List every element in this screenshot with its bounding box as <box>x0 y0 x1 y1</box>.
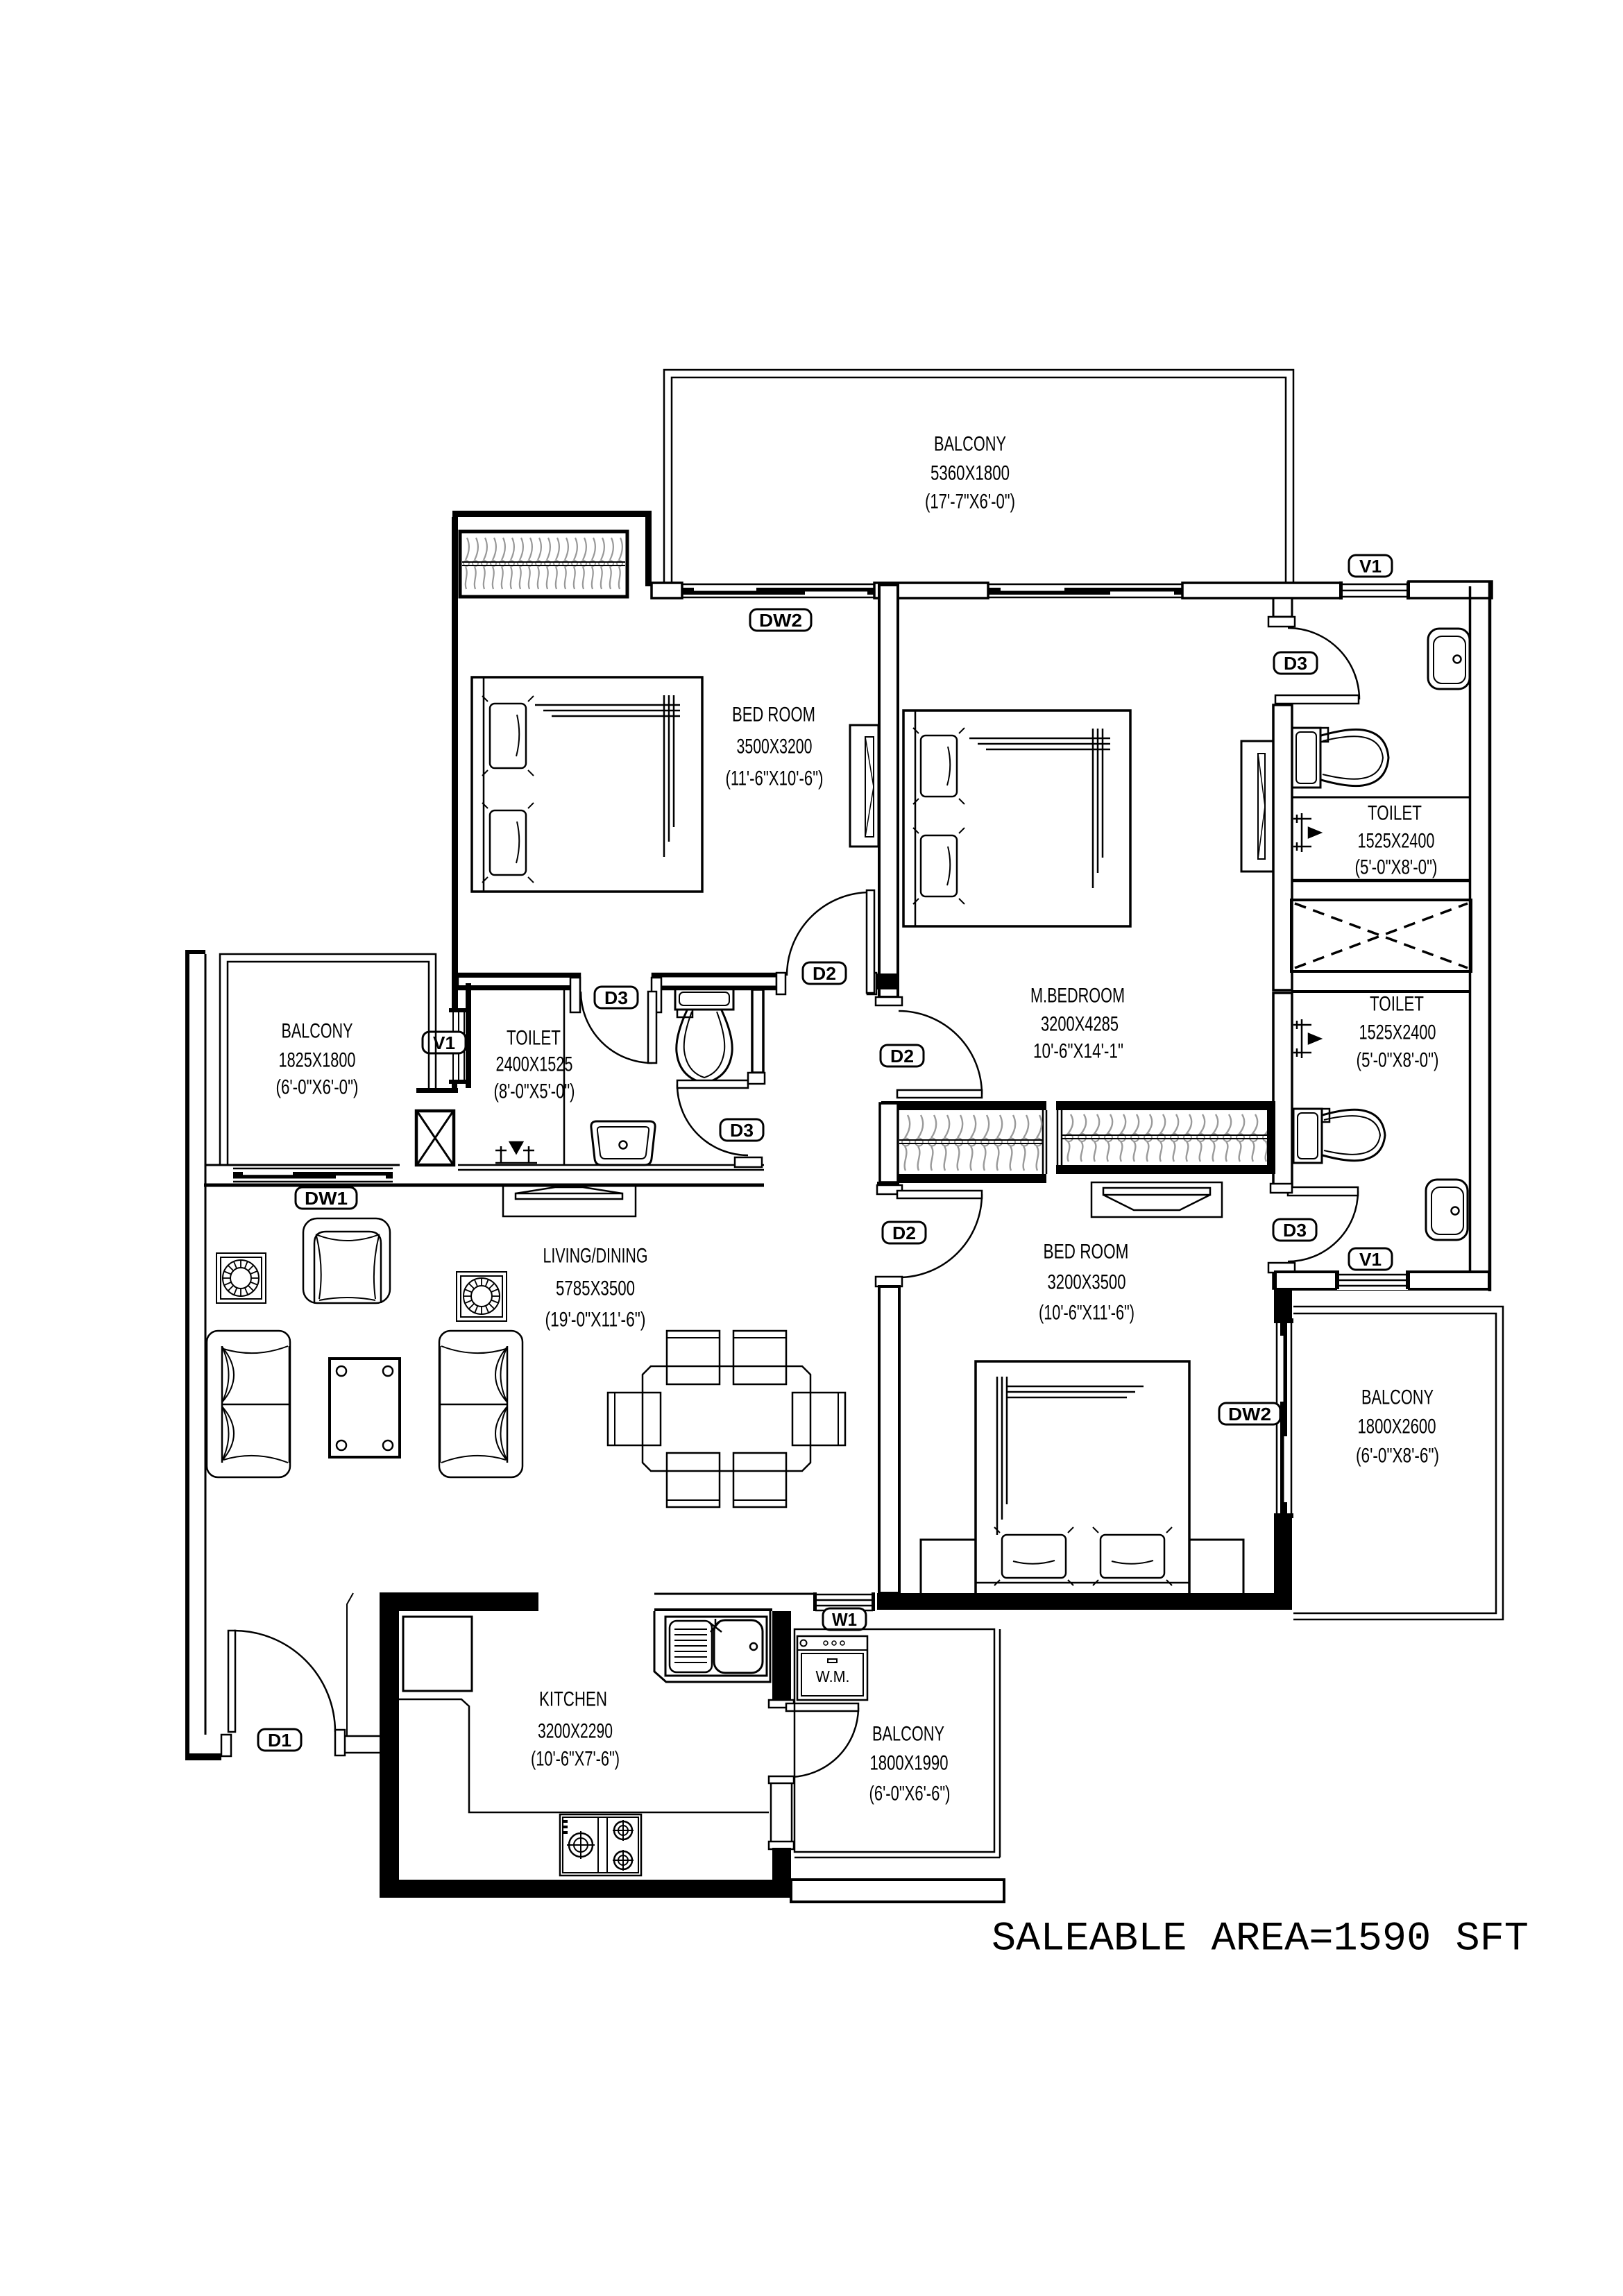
svg-text:D3: D3 <box>604 987 628 1008</box>
svg-text:LIVING/DINING: LIVING/DINING <box>543 1245 648 1268</box>
svg-text:2400X1525: 2400X1525 <box>496 1053 573 1076</box>
svg-text:D2: D2 <box>892 1223 916 1243</box>
svg-text:5360X1800: 5360X1800 <box>931 462 1010 485</box>
svg-text:BALCONY: BALCONY <box>282 1020 353 1043</box>
svg-text:(17'-7"X6'-0"): (17'-7"X6'-0") <box>925 491 1015 513</box>
svg-text:1825X1800: 1825X1800 <box>279 1049 356 1072</box>
svg-text:(10'-6"X11'-6"): (10'-6"X11'-6") <box>1039 1302 1135 1325</box>
svg-text:V1: V1 <box>1359 1249 1382 1270</box>
svg-text:(10'-6"X7'-6"): (10'-6"X7'-6") <box>531 1748 620 1771</box>
svg-text:(6'-0"X6'-6"): (6'-0"X6'-6") <box>869 1783 951 1805</box>
svg-text:DW1: DW1 <box>305 1188 348 1209</box>
svg-text:3200X4285: 3200X4285 <box>1041 1013 1119 1036</box>
svg-text:DW2: DW2 <box>1228 1404 1271 1425</box>
svg-text:D1: D1 <box>268 1730 291 1751</box>
svg-text:TOILET: TOILET <box>507 1027 561 1050</box>
svg-text:3200X2290: 3200X2290 <box>538 1720 613 1743</box>
svg-text:W.M.: W.M. <box>816 1667 850 1685</box>
svg-text:D2: D2 <box>890 1046 914 1066</box>
svg-text:BALCONY: BALCONY <box>1361 1386 1434 1409</box>
svg-text:V1: V1 <box>1359 556 1382 577</box>
svg-text:KITCHEN: KITCHEN <box>539 1688 607 1711</box>
svg-text:10'-6"X14'-1": 10'-6"X14'-1" <box>1033 1040 1123 1063</box>
svg-text:(5'-0"X8'-0"): (5'-0"X8'-0") <box>1355 856 1438 879</box>
svg-text:(6'-0"X6'-0"): (6'-0"X6'-0") <box>276 1076 359 1099</box>
svg-text:(6'-0"X8'-6"): (6'-0"X8'-6") <box>1356 1445 1439 1468</box>
svg-text:D2: D2 <box>813 963 836 984</box>
svg-text:BALCONY: BALCONY <box>934 433 1006 456</box>
svg-text:1525X2400: 1525X2400 <box>1359 1021 1436 1044</box>
svg-text:TOILET: TOILET <box>1368 802 1422 825</box>
svg-text:3500X3200: 3500X3200 <box>737 735 813 758</box>
svg-text:1525X2400: 1525X2400 <box>1358 830 1435 853</box>
svg-text:(11'-6"X10'-6"): (11'-6"X10'-6") <box>726 767 824 790</box>
svg-text:M.BEDROOM: M.BEDROOM <box>1030 985 1125 1007</box>
svg-text:BALCONY: BALCONY <box>872 1723 944 1746</box>
svg-text:DW2: DW2 <box>759 610 802 631</box>
svg-text:(5'-0"X8'-0"): (5'-0"X8'-0") <box>1357 1049 1439 1072</box>
svg-text:W1: W1 <box>832 1609 857 1630</box>
svg-text:TOILET: TOILET <box>1370 993 1424 1016</box>
svg-text:3200X3500: 3200X3500 <box>1048 1271 1126 1294</box>
svg-text:D3: D3 <box>1284 653 1307 674</box>
svg-text:BED ROOM: BED ROOM <box>1044 1241 1129 1264</box>
svg-text:SALEABLE AREA=1590 SFT: SALEABLE AREA=1590 SFT <box>992 1917 1529 1962</box>
svg-text:1800X1990: 1800X1990 <box>870 1752 949 1775</box>
svg-text:(19'-0"X11'-6"): (19'-0"X11'-6") <box>545 1309 646 1332</box>
svg-text:D3: D3 <box>730 1120 754 1141</box>
svg-text:1800X2600: 1800X2600 <box>1358 1415 1436 1438</box>
svg-text:D3: D3 <box>1283 1220 1307 1241</box>
svg-text:(8'-0"X5'-0"): (8'-0"X5'-0") <box>494 1080 575 1103</box>
svg-text:5785X3500: 5785X3500 <box>556 1277 635 1300</box>
svg-text:BED ROOM: BED ROOM <box>732 704 815 726</box>
